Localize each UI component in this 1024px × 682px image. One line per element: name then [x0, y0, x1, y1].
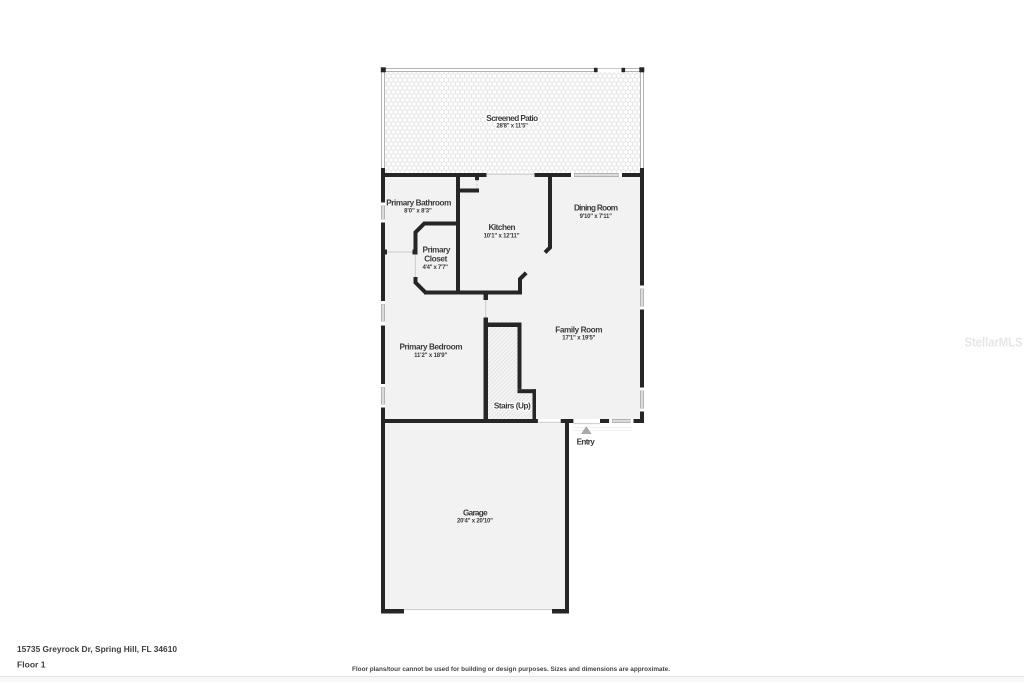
- svg-text:8'0" x 8'3": 8'0" x 8'3": [404, 209, 432, 215]
- svg-text:Floor plans/tour cannot be use: Floor plans/tour cannot be used for buil…: [352, 666, 670, 673]
- svg-text:28'8" x 11'5": 28'8" x 11'5": [496, 124, 528, 130]
- svg-text:Closet: Closet: [424, 255, 447, 264]
- svg-text:Primary Bedroom: Primary Bedroom: [399, 343, 462, 352]
- svg-text:Stairs (Up): Stairs (Up): [494, 401, 531, 410]
- svg-text:17'1" x 19'5": 17'1" x 19'5": [562, 336, 595, 342]
- svg-text:Kitchen: Kitchen: [488, 223, 515, 232]
- svg-text:Dining Room: Dining Room: [574, 203, 618, 212]
- svg-text:20'4" x 20'10": 20'4" x 20'10": [457, 518, 493, 524]
- svg-text:Primary: Primary: [423, 245, 451, 254]
- svg-text:15735 Greyrock Dr, Spring Hill: 15735 Greyrock Dr, Spring Hill, FL 34610: [17, 645, 178, 654]
- svg-text:9'10" x 7'11": 9'10" x 7'11": [580, 214, 613, 220]
- svg-text:Entry: Entry: [577, 438, 596, 447]
- svg-text:10'1" x 12'11": 10'1" x 12'11": [484, 234, 520, 240]
- svg-text:Screened Patio: Screened Patio: [486, 114, 538, 123]
- svg-text:Floor 1: Floor 1: [17, 661, 46, 670]
- svg-text:4'4" x 7'7": 4'4" x 7'7": [422, 265, 448, 271]
- svg-text:11'2" x 18'9": 11'2" x 18'9": [414, 353, 447, 359]
- svg-text:Family Room: Family Room: [555, 326, 602, 335]
- svg-text:StellarMLS: StellarMLS: [965, 336, 1023, 350]
- svg-text:Garage: Garage: [463, 509, 488, 518]
- svg-text:Primary Bathroom: Primary Bathroom: [386, 199, 451, 208]
